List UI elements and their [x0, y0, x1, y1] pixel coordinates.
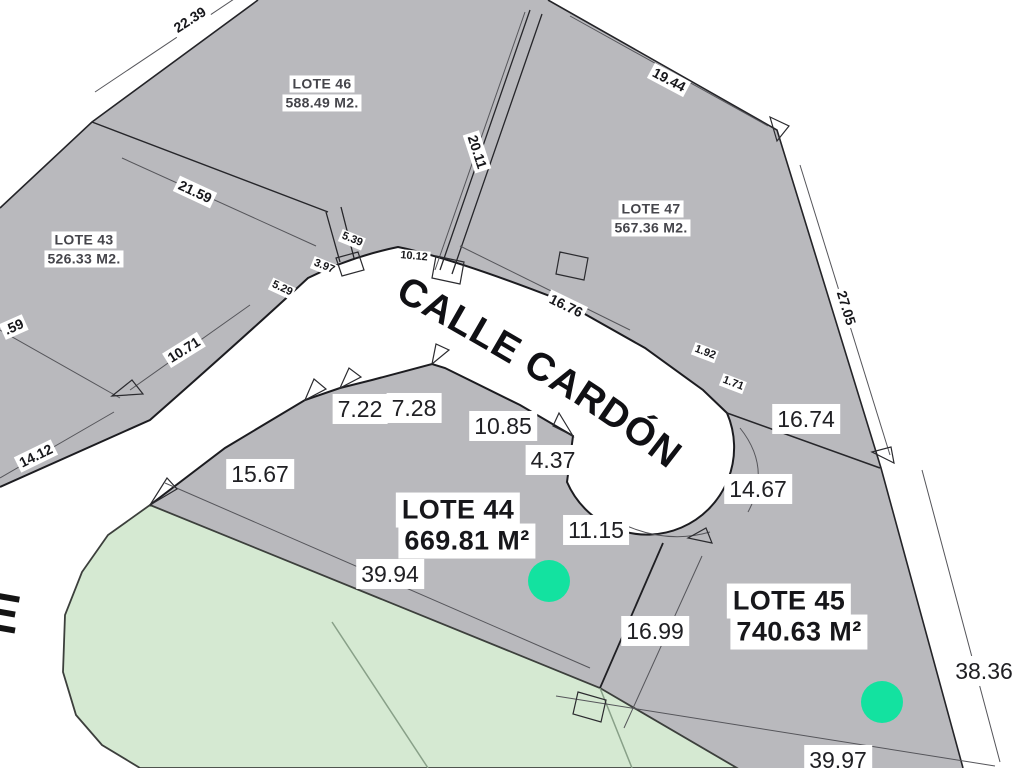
dim-11-15: 11.15	[563, 515, 629, 545]
dim-15-67: 15.67	[226, 459, 294, 489]
dim-38-36: 38.36	[950, 656, 1018, 686]
lote-46-name: LOTE 46	[290, 75, 355, 92]
lote-47-area: 567.36 M2.	[611, 219, 690, 236]
lote-45-name: LOTE 45	[727, 584, 851, 619]
dim-39-94: 39.94	[356, 559, 424, 589]
lote-44-area: 669.81 M²	[398, 524, 535, 559]
dim-7-28: 7.28	[387, 393, 442, 423]
dim-16-99: 16.99	[621, 616, 689, 646]
plat-drawing: CALLE CARDÓN	[0, 0, 1025, 768]
lote-47-name: LOTE 47	[619, 200, 684, 217]
lote-45-area: 740.63 M²	[730, 615, 867, 650]
lote44-marker	[528, 560, 570, 602]
lote-43-area: 526.33 M2.	[44, 250, 123, 267]
dim-4-37: 4.37	[526, 445, 581, 475]
lot-map: CALLE CARDÓN E LOTE 43 526.33 M2. LOTE 4…	[0, 0, 1025, 768]
dim-7-22: 7.22	[333, 394, 388, 424]
dim-10-85: 10.85	[469, 411, 537, 441]
lote45-marker	[861, 681, 903, 723]
dim-10-12: 10.12	[398, 249, 431, 265]
lote-44-name: LOTE 44	[396, 493, 520, 528]
lote-46-area: 588.49 M2.	[282, 94, 361, 111]
dim-39-97: 39.97	[804, 745, 872, 768]
dim-14-67: 14.67	[724, 474, 792, 504]
dim-16-74: 16.74	[772, 404, 840, 434]
lote-43-name: LOTE 43	[52, 231, 117, 248]
